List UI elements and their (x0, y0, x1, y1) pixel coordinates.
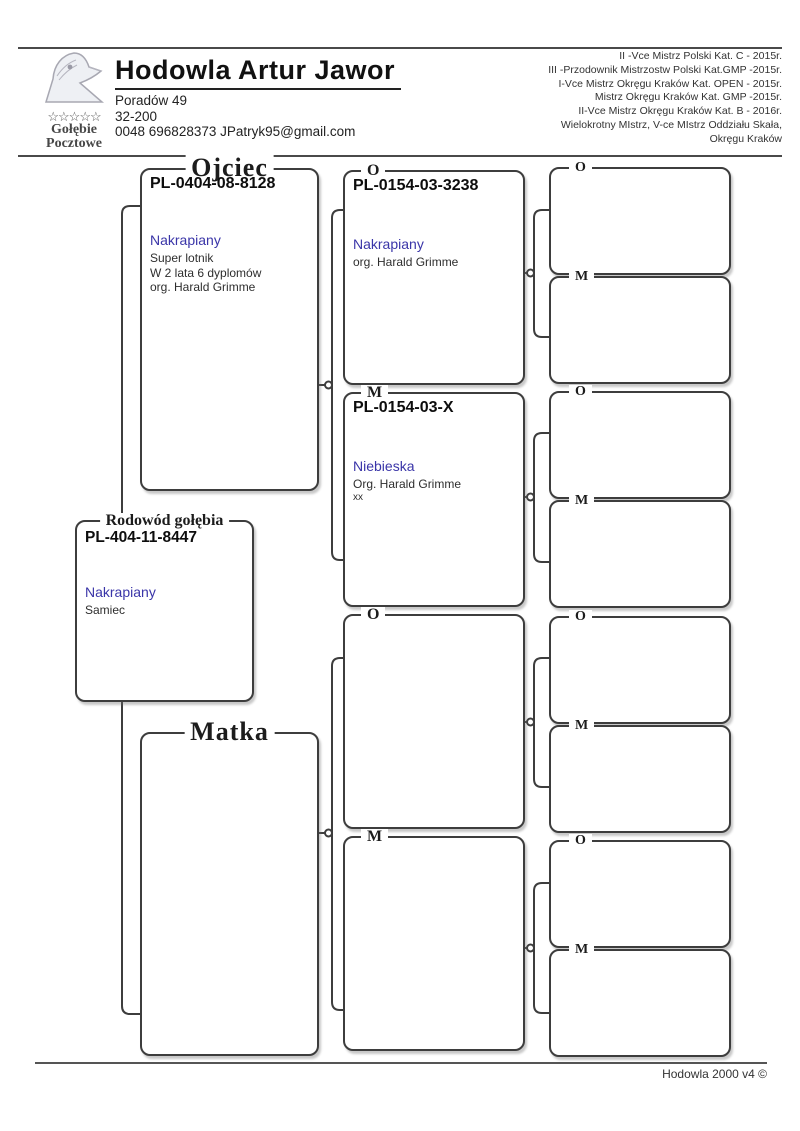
grandmother-paternal-box: M PL-0154-03-X Niebieska Org. Harald Gri… (343, 392, 525, 607)
color-name: Nakrapiany (150, 232, 221, 248)
great-grandparent-box: M (549, 500, 731, 608)
grandfather-maternal-box: O (343, 614, 525, 829)
junction-dot (527, 719, 534, 726)
great-grandparent-box: M (549, 949, 731, 1057)
father-box: Ojciec PL-0404-08-8128 Nakrapiany Super … (140, 168, 319, 491)
junction-dot (527, 494, 534, 501)
great-grandparent-box: O (549, 840, 731, 948)
mother-box: Matka (140, 732, 319, 1056)
great-grandparent-box: O (549, 616, 731, 724)
box-label-o: O (569, 610, 592, 624)
junction-dot (325, 830, 332, 837)
detail-line: org. Harald Grimme (150, 280, 261, 295)
bird-details: Samiec (85, 603, 125, 618)
detail-line: W 2 lata 6 dyplomów (150, 266, 261, 281)
detail-line: Super lotnik (150, 251, 261, 266)
ring-number: PL-0154-03-X (353, 399, 454, 417)
great-grandparent-box: O (549, 391, 731, 499)
bird-details: Super lotnik W 2 lata 6 dyplomów org. Ha… (150, 251, 261, 295)
ring-number: PL-0404-08-8128 (150, 175, 275, 193)
ring-number: PL-404-11-8447 (85, 529, 197, 547)
great-grandparent-box: M (549, 276, 731, 384)
box-label-m: M (569, 270, 594, 284)
pedigree-page: ☆☆☆☆☆ Gołębie Pocztowe Hodowla Artur Jaw… (0, 0, 800, 1131)
box-label-m: M (361, 829, 388, 845)
subject-box: Rodowód gołębia PL-404-11-8447 Nakrapian… (75, 520, 254, 702)
box-label-o: O (361, 607, 385, 623)
box-label-m: M (569, 719, 594, 733)
bird-details: org. Harald Grimme (353, 255, 458, 270)
great-grandparent-box: O (549, 167, 731, 275)
bird-details: Org. Harald Grimme xx (353, 477, 461, 504)
color-name: Nakrapiany (85, 584, 156, 600)
junction-dot (527, 945, 534, 952)
connector-gen4-bracket (534, 433, 549, 562)
junction-dot (325, 382, 332, 389)
detail-line: org. Harald Grimme (353, 255, 458, 270)
color-name: Niebieska (353, 458, 414, 474)
great-grandparent-box: M (549, 725, 731, 833)
detail-line: Org. Harald Grimme (353, 477, 461, 492)
grandmother-maternal-box: M (343, 836, 525, 1051)
connector-gen4-bracket (534, 658, 549, 787)
connector-father-bracket (332, 210, 343, 560)
subject-box-label: Rodowód gołębia (100, 513, 230, 529)
connector-gen4-bracket (534, 210, 549, 337)
ring-number: PL-0154-03-3238 (353, 177, 478, 195)
color-name: Nakrapiany (353, 236, 424, 252)
connector-mother-bracket (332, 658, 343, 1010)
box-label-m: M (569, 943, 594, 957)
box-label-o: O (569, 161, 592, 175)
box-label-o: O (569, 834, 592, 848)
footer-rule (35, 1062, 767, 1064)
grandfather-paternal-box: O PL-0154-03-3238 Nakrapiany org. Harald… (343, 170, 525, 385)
detail-line: xx (353, 492, 461, 504)
box-label-m: M (569, 494, 594, 508)
footer-software-credit: Hodowla 2000 v4 © (662, 1067, 767, 1081)
detail-line: Samiec (85, 603, 125, 618)
junction-dot (527, 270, 534, 277)
mother-box-label: Matka (184, 719, 275, 745)
connector-gen4-bracket (534, 883, 549, 1013)
box-label-o: O (569, 385, 592, 399)
